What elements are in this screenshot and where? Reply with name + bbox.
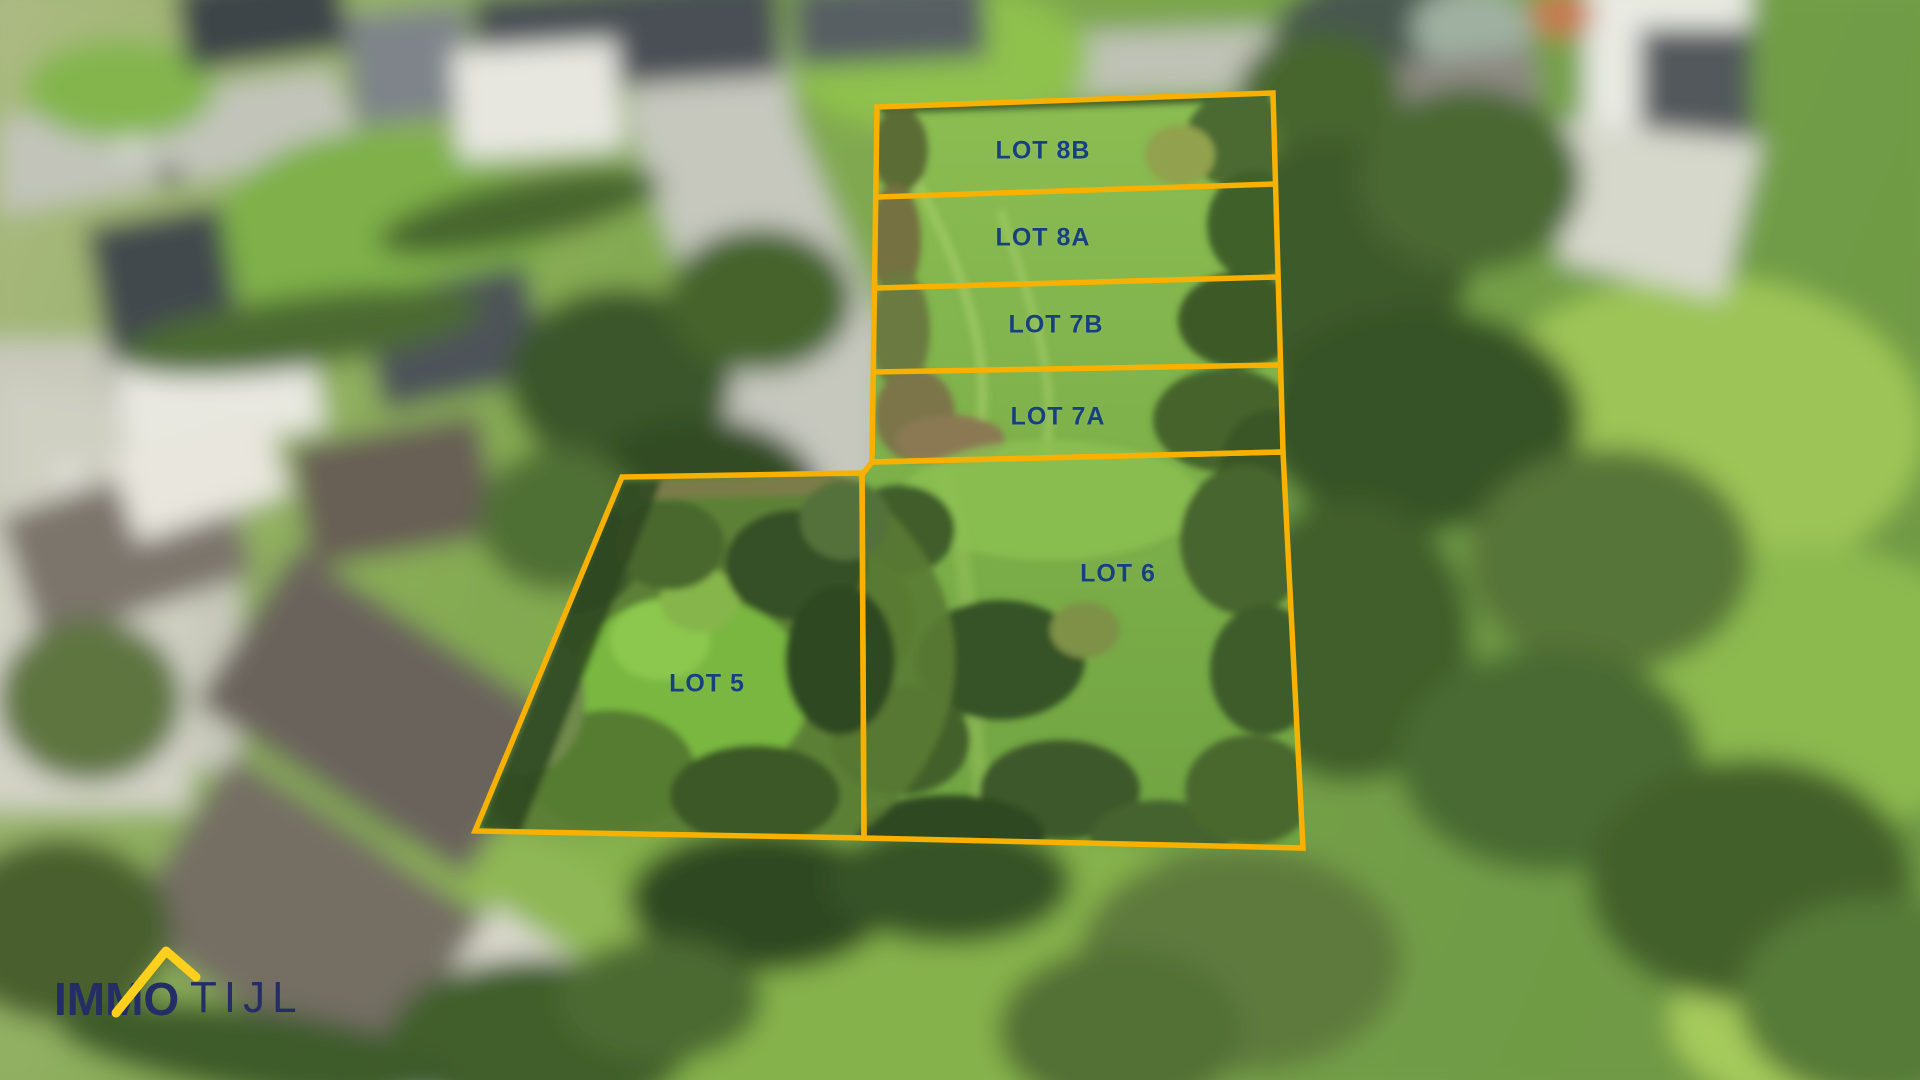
lot-label-6: LOT 6	[1080, 560, 1156, 589]
aerial-photo: LOT 8B LOT 8A LOT 7B LOT 7A LOT 6 LOT 5 …	[0, 0, 1920, 1080]
lot-label-7b: LOT 7B	[1009, 311, 1104, 340]
logo-text-primary: IMMO	[54, 976, 179, 1022]
lot-label-7a: LOT 7A	[1011, 403, 1106, 432]
lot-label-8a: LOT 8A	[996, 224, 1091, 253]
immotijl-logo: IMMO TIJL	[50, 943, 370, 1033]
lot-label-5: LOT 5	[669, 670, 745, 699]
logo-text-secondary: TIJL	[190, 976, 304, 1020]
lot-label-8b: LOT 8B	[996, 137, 1091, 166]
aerial-photo-scene	[0, 0, 1920, 1080]
